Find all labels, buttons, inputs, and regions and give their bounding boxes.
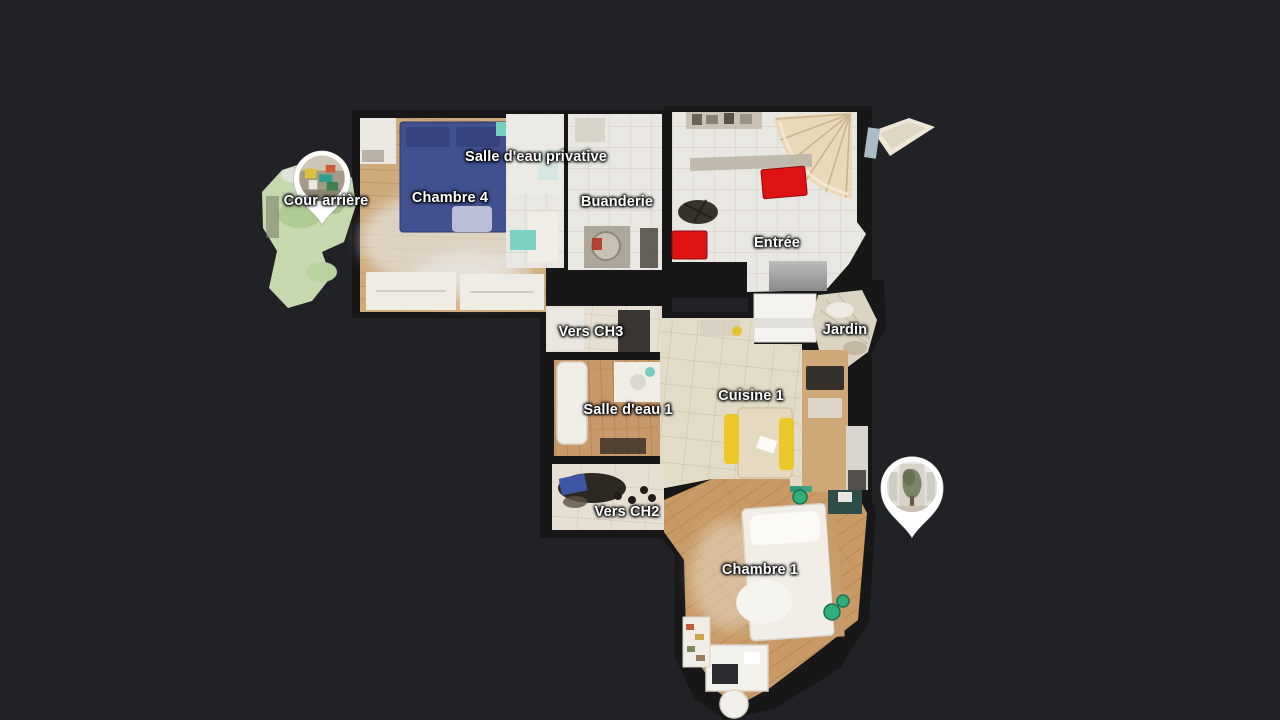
room-floor-vers-ch2 bbox=[552, 464, 664, 530]
terrace-table bbox=[754, 294, 816, 342]
room-floor-vers-ch3 bbox=[546, 306, 662, 352]
stove-top bbox=[806, 366, 844, 390]
dumbbell bbox=[793, 490, 807, 504]
pano-marker-jardin[interactable] bbox=[881, 456, 944, 538]
bed-chambre-4 bbox=[400, 122, 512, 232]
exterior-roof-piece bbox=[864, 118, 935, 159]
floorplan-rendering bbox=[0, 0, 1280, 720]
red-chair-upper bbox=[761, 166, 807, 199]
floorplan-viewport[interactable]: Cour arrièreChambre 4Salle d'eau privati… bbox=[0, 0, 1280, 720]
entry-mat bbox=[769, 261, 827, 291]
dumbbell bbox=[824, 604, 840, 620]
shelf-chambre-1 bbox=[683, 617, 710, 667]
red-chair-lower bbox=[672, 231, 707, 259]
room-floor-salle-eau-privative bbox=[506, 114, 564, 268]
room-floor-salle-eau-1 bbox=[554, 360, 662, 456]
dumbbell bbox=[837, 595, 849, 607]
room-floor-buanderie bbox=[568, 114, 662, 270]
